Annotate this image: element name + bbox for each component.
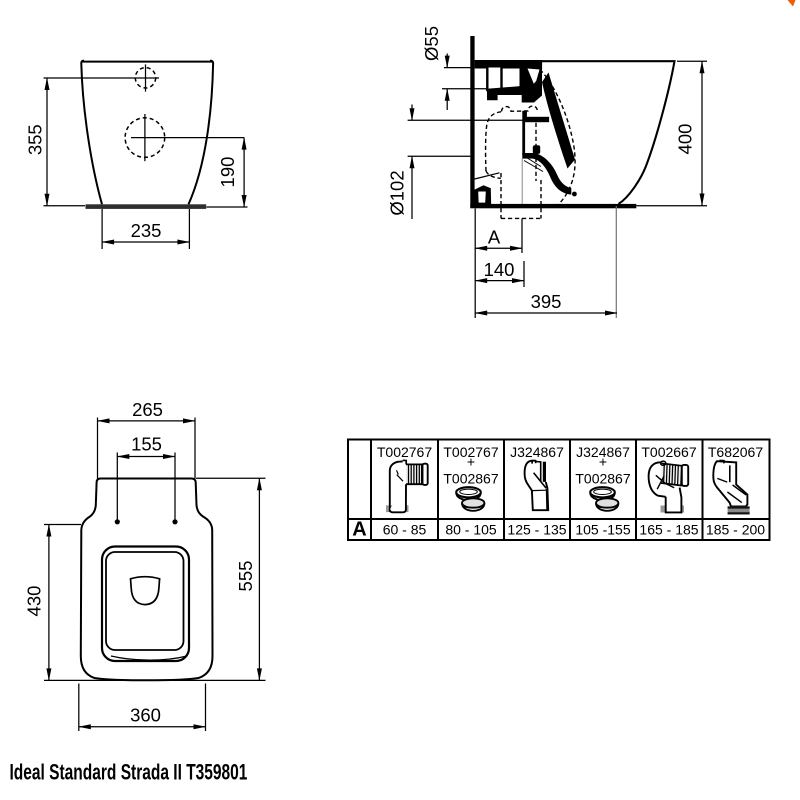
- svg-text:T002767: T002767: [377, 444, 432, 460]
- svg-text:Ideal Standard Strada II T3598: Ideal Standard Strada II T359801: [10, 761, 248, 785]
- svg-text:555: 555: [235, 561, 256, 592]
- svg-text:360: 360: [130, 705, 161, 726]
- svg-text:430: 430: [23, 586, 44, 617]
- svg-text:400: 400: [674, 124, 695, 155]
- svg-text:+: +: [467, 454, 475, 470]
- svg-text:185 - 200: 185 - 200: [706, 522, 765, 538]
- svg-text:155: 155: [131, 434, 162, 455]
- svg-text:80 - 105: 80 - 105: [445, 522, 497, 538]
- svg-text:J324867: J324867: [510, 444, 564, 460]
- svg-text:Ø102: Ø102: [386, 170, 407, 215]
- svg-text:T002667: T002667: [641, 444, 696, 460]
- svg-text:Ø55: Ø55: [421, 26, 442, 61]
- svg-text:T682067: T682067: [708, 444, 763, 460]
- svg-text:A: A: [352, 519, 366, 541]
- svg-text:190: 190: [217, 157, 238, 188]
- svg-text:+: +: [599, 454, 607, 470]
- svg-text:60 - 85: 60 - 85: [383, 522, 427, 538]
- svg-text:165 - 185: 165 - 185: [639, 522, 698, 538]
- svg-text:395: 395: [531, 291, 562, 312]
- svg-text:125 - 135: 125 - 135: [507, 522, 566, 538]
- svg-text:A: A: [488, 227, 501, 248]
- svg-text:T002867: T002867: [443, 471, 498, 487]
- svg-text:265: 265: [132, 399, 163, 420]
- svg-text:T002867: T002867: [575, 471, 630, 487]
- svg-text:105 -155: 105 -155: [575, 522, 630, 538]
- svg-text:235: 235: [131, 220, 162, 241]
- svg-text:140: 140: [484, 259, 515, 280]
- svg-text:355: 355: [25, 124, 46, 155]
